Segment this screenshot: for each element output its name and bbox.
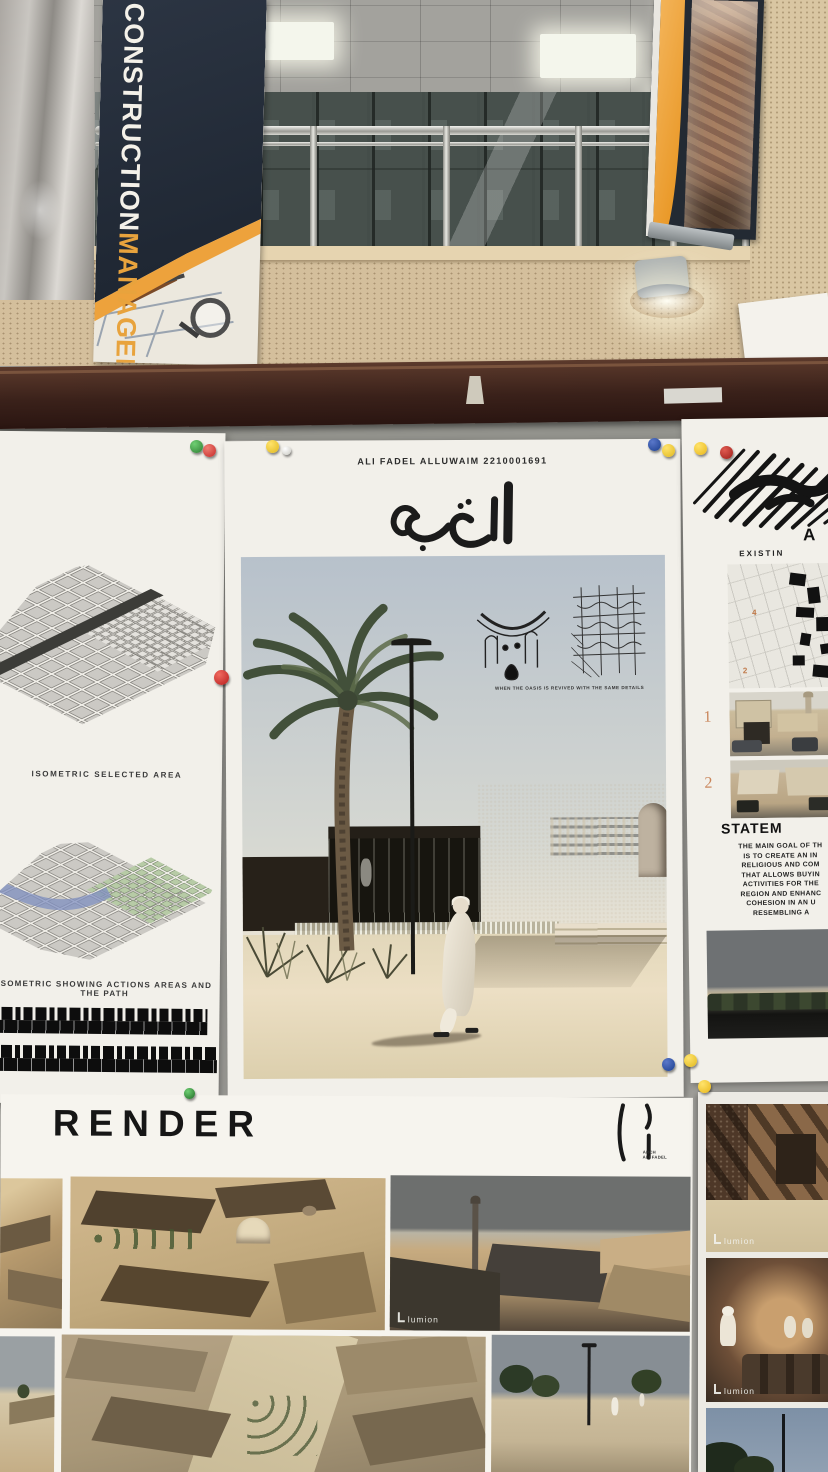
building-perforated-screen [550, 817, 642, 855]
figure-ground-map: 4 2 3 [727, 563, 828, 689]
site-photo-1 [729, 691, 828, 757]
push-pin-yellow [266, 440, 279, 453]
isometric-drawing-selected-area [0, 543, 222, 765]
push-pin-red [720, 446, 733, 459]
push-pin-yellow [698, 1080, 711, 1093]
push-pin-red [203, 444, 216, 457]
map-number: 2 [743, 666, 748, 675]
push-pin-blue [662, 1058, 675, 1071]
render-thumb-courtyard [70, 1177, 386, 1331]
concept-sketch-alley [471, 589, 555, 681]
right-poster-analysis: A EXISTIN 4 2 3 1 2 [681, 417, 828, 1083]
railing-post [310, 126, 317, 248]
photo-of-display-wall: CONSTRUCTIONMANAGEMENT [0, 0, 828, 1472]
panorama-treeline [707, 991, 828, 1010]
construction-management-banner: CONSTRUCTIONMANAGEMENT [93, 0, 267, 366]
main-render-image: WHEN THE OASIS IS REVIVED WITH THE SAME … [241, 555, 668, 1079]
railing-post [575, 126, 582, 248]
banner-line-management: MANAGEMENT [108, 232, 143, 366]
push-pin-blue [648, 438, 661, 451]
lumion-watermark: lumion [398, 1312, 439, 1324]
render-heading: RENDER [53, 1102, 263, 1145]
lumion-watermark: lumion [714, 1234, 755, 1246]
elevation-strip [0, 1045, 217, 1073]
ceiling-light [540, 34, 636, 78]
photo-number: 1 [703, 709, 711, 727]
panorama-render [707, 929, 828, 1039]
push-pin-red-ball [214, 670, 229, 685]
render-sheet: RENDER ARCH ALI FADEL [0, 1094, 693, 1472]
elevation-strip [0, 1007, 207, 1035]
photo-number: 2 [704, 775, 712, 793]
arch-opening [638, 803, 667, 877]
map-number: 4 [752, 608, 757, 617]
statement-title: STATEM [721, 819, 828, 837]
railing-post [443, 126, 450, 248]
author-line: ALI FADEL ALLUWAIM 2210001691 [224, 455, 680, 467]
isometric-drawing-actions-path [0, 829, 219, 971]
site-photo-2 [730, 759, 828, 819]
render-thumb-aerial-a [0, 1178, 63, 1328]
architect-logo: ARCH ALI FADEL [613, 1097, 677, 1167]
section-heading-fragment: A [803, 525, 816, 545]
push-pin-yellow [662, 444, 675, 457]
render-thumb-stone-pergola: lumion [706, 1104, 828, 1252]
render-thumb-street-view [491, 1335, 690, 1472]
statement-line: RESEMBLING A [714, 907, 828, 918]
logo-text: ARCH ALI FADEL [643, 1150, 667, 1160]
push-pin-green [190, 440, 203, 453]
sketch-caption: WHEN THE OASIS IS REVIVED WITH THE SAME … [470, 685, 668, 691]
banner-line-construction: CONSTRUCTION [114, 2, 150, 232]
render-thumb-street-a [0, 1336, 55, 1472]
statement-line: COHESION IN AN U [714, 898, 828, 909]
render-thumb-village-minaret: lumion [390, 1175, 691, 1332]
banner-title: CONSTRUCTIONMANAGEMENT [112, 2, 149, 238]
push-pin-white [282, 446, 291, 455]
statement-paragraph: THE MAIN GOAL OF TH IS TO CREATE AN IN R… [713, 841, 828, 919]
iso-caption-actions: ISOMETRIC SHOWING ACTIONS AREAS AND THE … [0, 979, 220, 999]
ceiling-light [262, 22, 334, 60]
arabic-title-calligraphy [376, 478, 526, 555]
iso-caption-selected: ISOMETRIC SELECTED AREA [0, 769, 222, 780]
push-pin-yellow [694, 442, 707, 455]
existing-label: EXISTIN [739, 549, 784, 559]
metal-column [0, 0, 94, 300]
left-poster-isometrics: ISOMETRIC SELECTED AREA ISOMETRIC SHOWIN… [0, 431, 226, 1105]
pedestrian-in-thobe [431, 898, 492, 1040]
right-render-column: lumion lumion [698, 1092, 828, 1472]
lumion-watermark: lumion [714, 1384, 755, 1396]
render-thumb-sky-palm [706, 1408, 828, 1472]
push-pin-yellow [684, 1054, 697, 1067]
center-poster-alsaifa: ALI FADEL ALLUWAIM 2210001691 [224, 439, 683, 1099]
rail-label [664, 387, 722, 404]
tower-photo [684, 0, 758, 230]
render-thumb-aerial-street [61, 1335, 486, 1472]
render-thumb-interior-majlis: lumion [706, 1258, 828, 1402]
tower-photo-banner [646, 0, 764, 240]
push-pin-green [184, 1088, 195, 1099]
lamp-glow [630, 284, 704, 318]
concept-sketch-stonewall [569, 583, 649, 677]
